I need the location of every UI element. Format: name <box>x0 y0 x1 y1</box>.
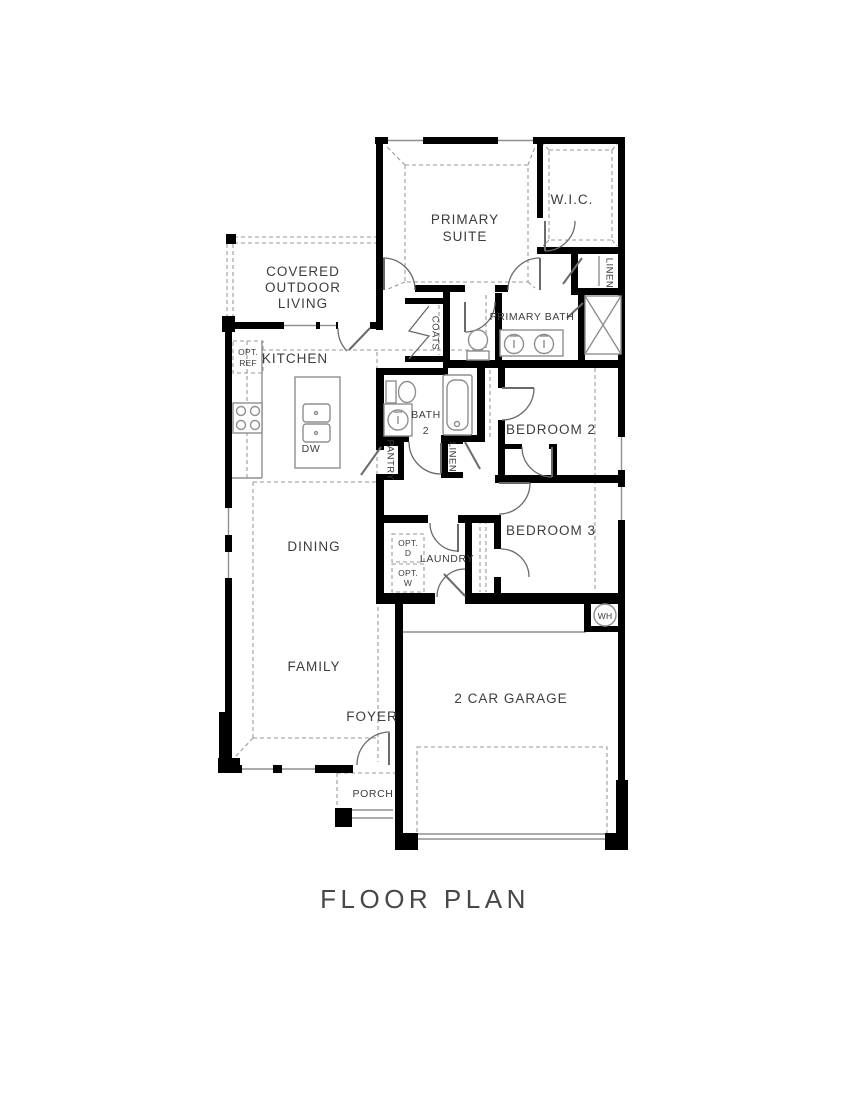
door-bath2 <box>409 442 441 474</box>
door-swings <box>338 221 583 765</box>
room-label-kitchen: KITCHEN <box>262 351 328 366</box>
floor-plan-canvas: PRIMARY SUITE W.I.C. LINEN PRIMARY BATH … <box>0 0 850 1100</box>
garage-door-dashed <box>417 747 607 834</box>
label-opt-d-2: D <box>405 548 411 558</box>
label-opt-w: OPT. <box>398 568 418 578</box>
label-opt-w-2: W <box>404 578 412 588</box>
tub-drain <box>455 422 460 427</box>
door-bedroom3-closet <box>501 549 529 577</box>
door-patio <box>338 328 347 351</box>
burner <box>251 407 260 416</box>
room-label-outdoor-living-3: LIVING <box>278 296 328 311</box>
room-label-primary-bath: PRIMARY BATH <box>490 311 575 323</box>
burner <box>251 421 260 430</box>
door-laundry-top <box>430 523 458 551</box>
room-label-garage: 2 CAR GARAGE <box>454 691 567 706</box>
room-label-linen-hall: LINEN <box>447 442 458 472</box>
door-bedroom3 <box>499 483 530 514</box>
label-opt-ref: OPT. <box>238 347 258 357</box>
room-labels: PRIMARY SUITE W.I.C. LINEN PRIMARY BATH … <box>238 192 614 800</box>
room-label-family: FAMILY <box>287 659 340 674</box>
label-dishwasher: DW <box>302 443 321 455</box>
room-label-foyer: FOYER <box>346 709 398 724</box>
fixtures <box>233 296 621 626</box>
door-suite-to-bath <box>508 258 540 290</box>
walls <box>218 137 628 850</box>
room-label-primary-suite: PRIMARY <box>431 212 499 227</box>
room-label-pantry: PANTRY <box>385 440 396 481</box>
room-label-dining: DINING <box>287 539 340 554</box>
burner <box>237 421 246 430</box>
room-label-outdoor-living-2: OUTDOOR <box>265 280 341 295</box>
room-label-porch: PORCH <box>353 788 394 800</box>
floor-plan-page: PRIMARY SUITE W.I.C. LINEN PRIMARY BATH … <box>0 0 850 1100</box>
room-label-bedroom2: BEDROOM 2 <box>506 422 596 437</box>
room-label-bedroom3: BEDROOM 3 <box>506 523 596 538</box>
room-label-coats: COATS <box>430 316 441 351</box>
door-front-entry <box>357 732 390 765</box>
room-label-bath2-2: 2 <box>423 425 429 437</box>
toilet-tank <box>386 381 396 403</box>
opt-refrigerator-box <box>233 341 263 373</box>
label-opt-ref-2: REF <box>239 358 257 368</box>
door-linen-hall <box>465 442 480 469</box>
label-opt-d: OPT. <box>398 538 418 548</box>
door-bedroom2-closet <box>522 447 552 477</box>
room-label-bath2: BATH <box>411 409 441 421</box>
door-bedroom2 <box>502 388 534 420</box>
porch-post <box>335 808 352 827</box>
door-primary-suite <box>383 258 415 290</box>
toilet <box>469 330 488 350</box>
toilet-tank <box>467 351 489 360</box>
door-pantry <box>361 447 381 475</box>
plan-title: FLOOR PLAN <box>320 884 530 914</box>
label-water-heater: WH <box>598 611 613 621</box>
patio-post <box>226 234 236 244</box>
windows <box>225 137 625 773</box>
room-label-outdoor-living: COVERED <box>266 264 340 279</box>
room-label-linen-upper: LINEN <box>604 258 615 288</box>
burner <box>237 407 246 416</box>
room-label-wic: W.I.C. <box>551 192 594 207</box>
room-label-laundry: LAUNDRY <box>420 553 474 565</box>
door-coats-bifold <box>409 306 429 359</box>
room-label-primary-suite-2: SUITE <box>443 229 488 244</box>
toilet <box>399 382 416 403</box>
